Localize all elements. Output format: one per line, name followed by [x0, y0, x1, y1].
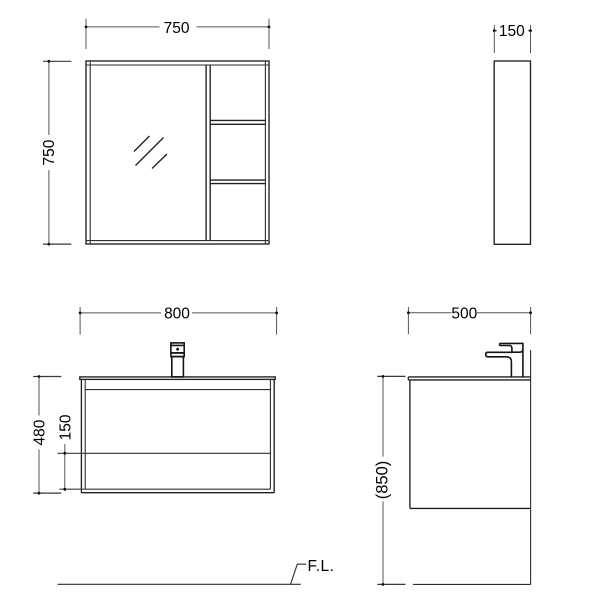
svg-text:F.L.: F.L. [308, 558, 335, 575]
svg-text:(850): (850) [374, 461, 392, 500]
svg-text:150: 150 [499, 23, 525, 40]
svg-text:750: 750 [41, 139, 58, 165]
svg-text:480: 480 [31, 419, 48, 445]
svg-text:150: 150 [58, 414, 75, 440]
svg-text:500: 500 [451, 305, 477, 322]
svg-text:800: 800 [164, 306, 190, 323]
svg-text:750: 750 [164, 20, 190, 37]
